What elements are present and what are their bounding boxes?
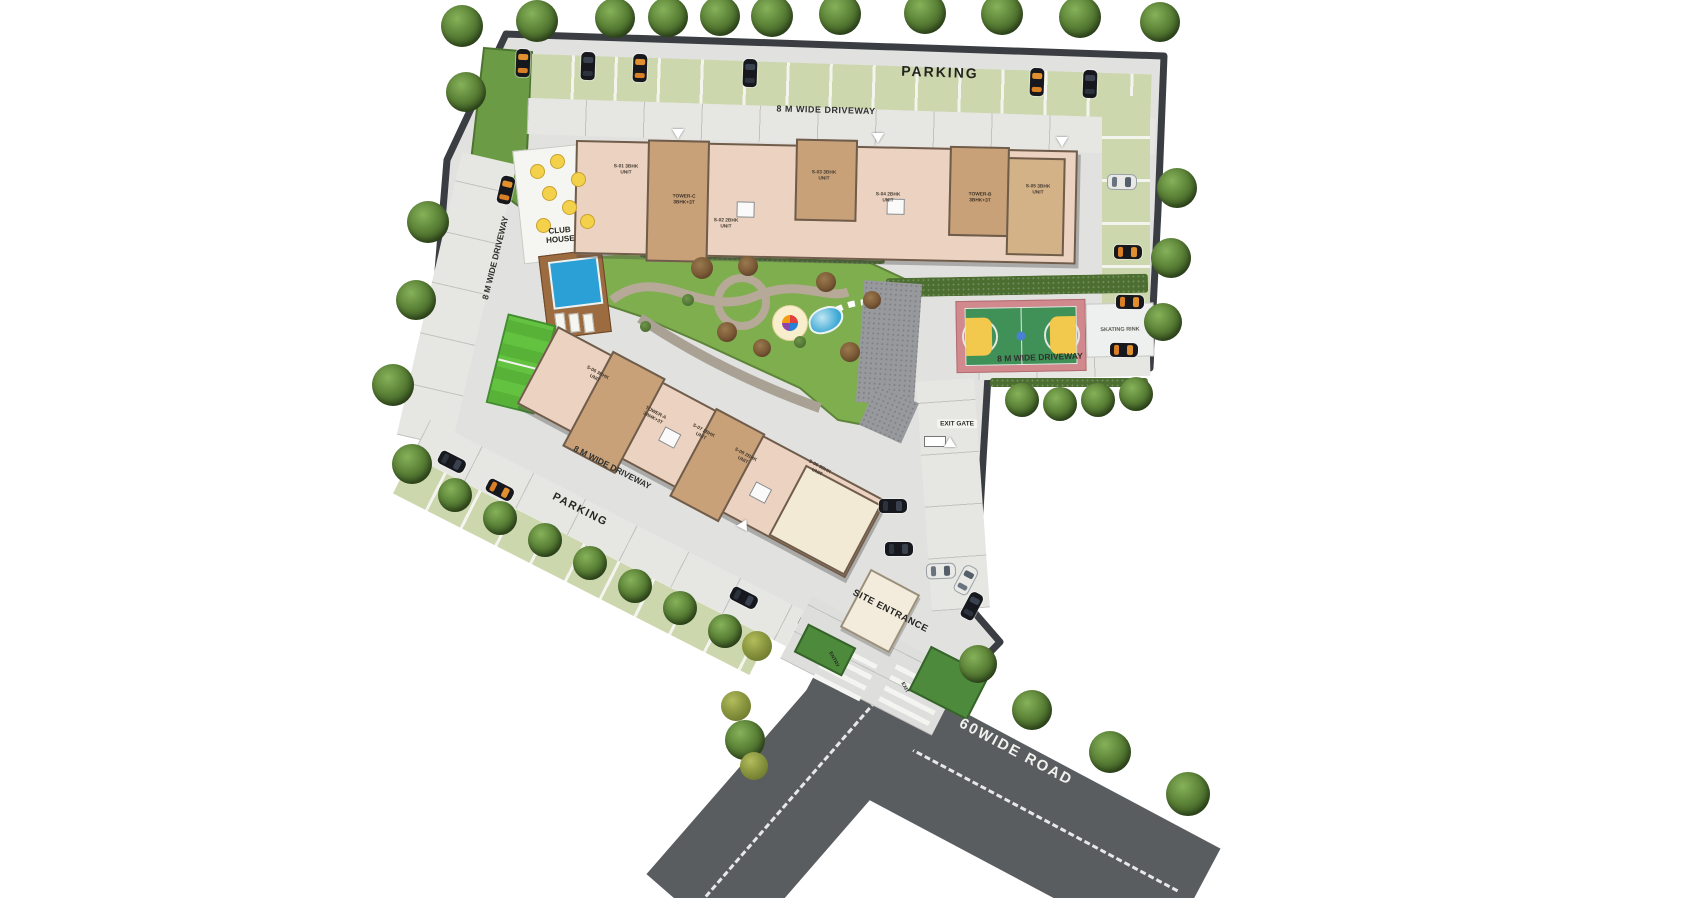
garden-tree: [753, 339, 771, 357]
label-parking-top: PARKING: [901, 63, 979, 82]
tower-block: [1006, 157, 1066, 256]
parked-car: [1083, 70, 1098, 98]
tree: [1005, 383, 1039, 417]
tree: [392, 444, 432, 484]
tree: [438, 478, 472, 512]
building-north: [574, 140, 1078, 264]
tree: [1043, 387, 1077, 421]
tree: [446, 72, 486, 112]
tree: [396, 280, 436, 320]
exit-gate-bar: [924, 436, 946, 447]
parked-car: [581, 52, 596, 80]
entry-arrow-marker: [1056, 137, 1068, 147]
pool-lounger: [583, 313, 595, 333]
tree: [1081, 383, 1115, 417]
club-table: [562, 200, 577, 215]
bush: [721, 691, 751, 721]
tower-block: [948, 146, 1010, 237]
club-table: [530, 164, 545, 179]
entry-arrow-marker: [672, 129, 684, 139]
label-unit-4: S-04 2BHK UNIT: [870, 192, 906, 204]
club-table: [580, 214, 595, 229]
club-table: [550, 154, 565, 169]
tree: [1144, 303, 1182, 341]
garden-tree: [717, 322, 737, 342]
parked-car: [879, 499, 907, 513]
garden-tree: [691, 257, 713, 279]
pool-lounger: [568, 313, 580, 333]
label-tower-b: TOWER-B 3BHK+3T: [962, 192, 998, 204]
tree: [1012, 690, 1052, 730]
tree: [1166, 772, 1210, 816]
bush: [742, 631, 772, 661]
garden-shrub: [794, 336, 806, 348]
parked-car: [927, 564, 955, 579]
entry-arrow-marker: [872, 133, 884, 143]
tree: [1151, 238, 1191, 278]
entry-arrow-marker: [944, 437, 956, 447]
stair-core: [658, 426, 681, 449]
site-plan-canvas: PARKING8 M WIDE DRIVEWAY8 M WIDE DRIVEWA…: [0, 0, 1700, 898]
parked-car: [633, 54, 648, 82]
label-exit-gate: EXIT GATE: [937, 419, 977, 428]
garden-tree: [738, 256, 758, 276]
label-club-house: CLUB HOUSE: [538, 224, 581, 246]
parked-car: [516, 49, 531, 77]
tree: [663, 591, 697, 625]
tree: [483, 501, 517, 535]
parked-car: [1114, 245, 1142, 259]
court-center-dot: [1016, 331, 1025, 340]
label-skating-rink: SKATING RINK: [1089, 326, 1151, 333]
tree: [618, 569, 652, 603]
garden-tree: [863, 291, 881, 309]
parked-car: [885, 542, 913, 556]
bush: [740, 752, 768, 780]
tree: [1157, 168, 1197, 208]
tree: [959, 645, 997, 683]
pinwheel-icon: [782, 315, 798, 331]
parked-car: [1110, 343, 1138, 357]
swimming-pool: [548, 256, 603, 310]
parked-car: [1116, 295, 1144, 309]
court-key-left: [966, 318, 993, 356]
parked-car: [743, 59, 758, 87]
tree: [1140, 2, 1180, 42]
garden-tree: [816, 272, 836, 292]
parked-car: [1108, 175, 1136, 189]
garden-shrub: [682, 294, 694, 306]
garden-shrub: [640, 321, 651, 332]
stair-core: [749, 481, 772, 504]
tree: [1089, 731, 1131, 773]
tree: [708, 614, 742, 648]
label-unit-2: S-02 2BHK UNIT: [708, 218, 744, 230]
label-unit-3: S-03 3BHK UNIT: [806, 170, 842, 182]
tree: [1119, 377, 1153, 411]
tree: [441, 5, 483, 47]
club-table: [571, 172, 586, 187]
court-key-right: [1050, 316, 1077, 354]
label-unit-1: S-01 3BHK UNIT: [608, 164, 644, 176]
club-table: [542, 186, 557, 201]
tree: [372, 364, 414, 406]
tree: [528, 523, 562, 557]
label-tower-c: TOWER-C 3BHK+3T: [666, 194, 702, 206]
label-unit-5: S-05 3BHK UNIT: [1020, 184, 1056, 196]
tree: [516, 0, 558, 42]
parked-car: [1030, 68, 1045, 96]
tree: [573, 546, 607, 580]
tree: [407, 201, 449, 243]
stair-core: [736, 201, 754, 217]
garden-tree: [840, 342, 860, 362]
